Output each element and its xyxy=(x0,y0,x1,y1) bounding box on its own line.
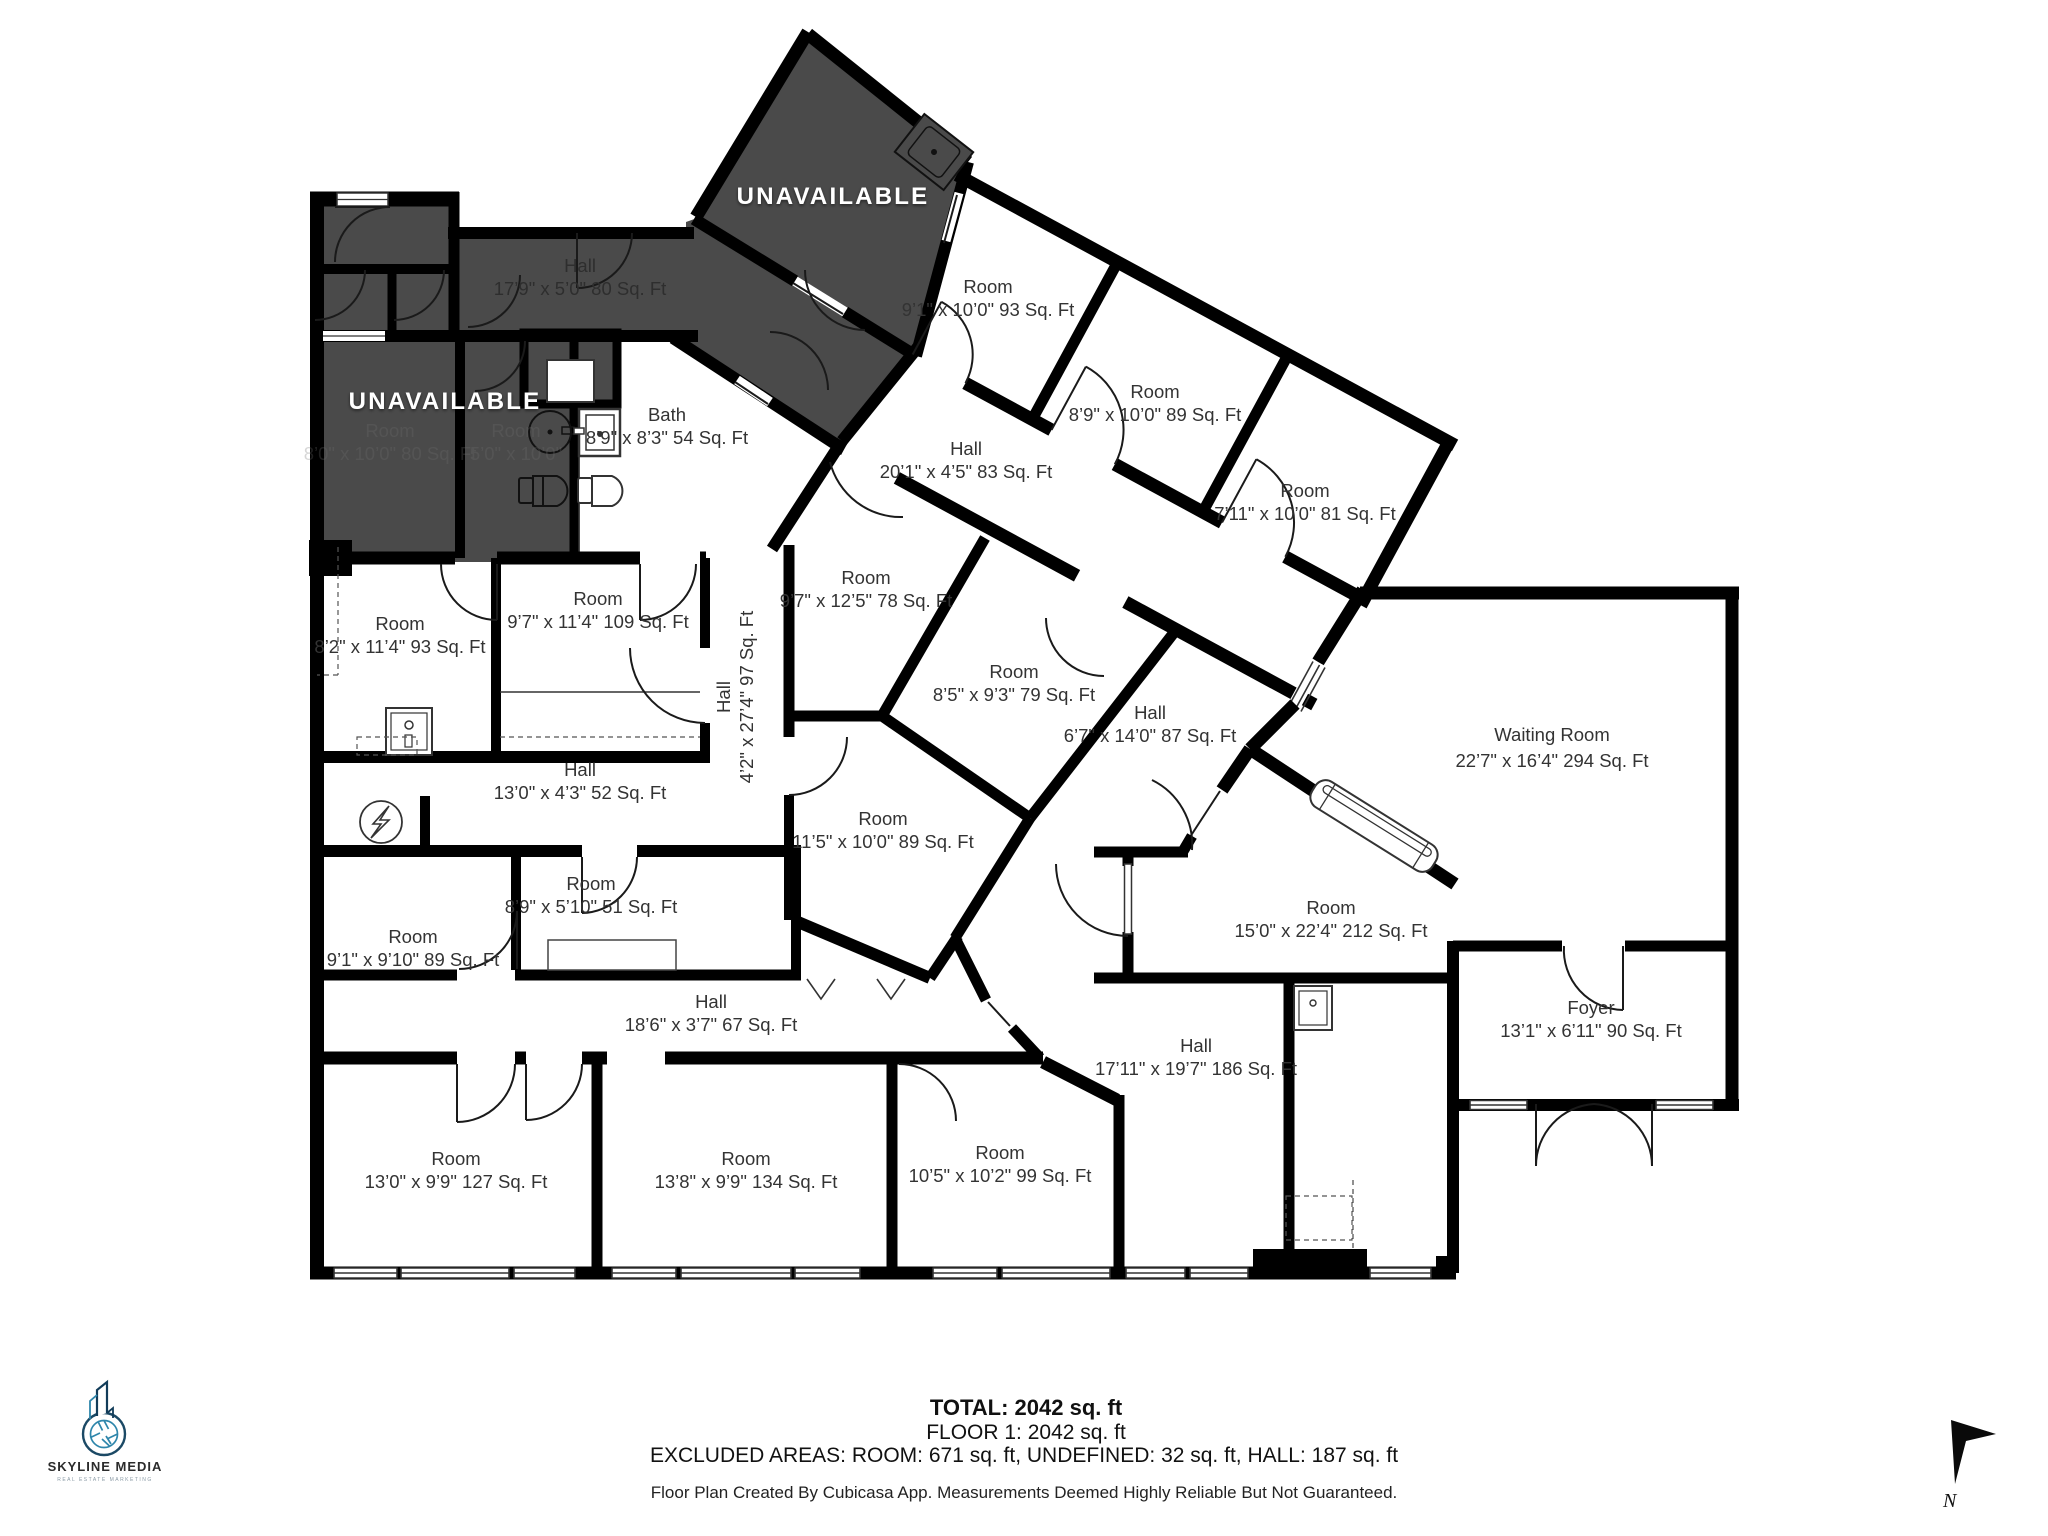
svg-text:9’7" x 12’5" 78 Sq. Ft: 9’7" x 12’5" 78 Sq. Ft xyxy=(780,590,953,611)
svg-text:Room: Room xyxy=(431,1148,480,1169)
svg-text:5’0" x 10’0": 5’0" x 10’0" xyxy=(470,443,562,464)
svg-text:Hall: Hall xyxy=(713,681,734,713)
svg-text:UNAVAILABLE: UNAVAILABLE xyxy=(737,183,930,210)
svg-text:Room: Room xyxy=(1280,480,1329,501)
svg-text:17’9" x 5’0" 80 Sq. Ft: 17’9" x 5’0" 80 Sq. Ft xyxy=(494,278,667,299)
svg-text:8’9" x 8’3" 54 Sq. Ft: 8’9" x 8’3" 54 Sq. Ft xyxy=(586,427,748,448)
svg-text:SKYLINE MEDIA: SKYLINE MEDIA xyxy=(48,1459,163,1474)
svg-text:7’11" x 10’0" 81 Sq. Ft: 7’11" x 10’0" 81 Sq. Ft xyxy=(1214,503,1395,524)
svg-text:13’0" x 9’9" 127 Sq. Ft: 13’0" x 9’9" 127 Sq. Ft xyxy=(365,1171,548,1192)
svg-text:Hall: Hall xyxy=(1134,702,1166,723)
svg-text:15’0" x 22’4" 212 Sq. Ft: 15’0" x 22’4" 212 Sq. Ft xyxy=(1234,920,1427,941)
svg-text:Room: Room xyxy=(491,420,540,441)
svg-text:EXCLUDED AREAS: ROOM: 671 sq.: EXCLUDED AREAS: ROOM: 671 sq. ft, UNDEFI… xyxy=(650,1444,1398,1467)
svg-text:Room: Room xyxy=(858,808,907,829)
svg-text:17’11" x 19’7" 186 Sq. Ft: 17’11" x 19’7" 186 Sq. Ft xyxy=(1095,1058,1297,1079)
svg-text:Room: Room xyxy=(1306,897,1355,918)
svg-text:13’1" x 6’11" 90 Sq. Ft: 13’1" x 6’11" 90 Sq. Ft xyxy=(1500,1020,1681,1041)
svg-text:Bath: Bath xyxy=(648,404,686,425)
svg-text:8’9" x 10’0" 89 Sq. Ft: 8’9" x 10’0" 89 Sq. Ft xyxy=(1069,404,1242,425)
svg-text:6’7" x 14’0" 87 Sq. Ft: 6’7" x 14’0" 87 Sq. Ft xyxy=(1064,725,1237,746)
svg-text:REAL ESTATE MARKETING: REAL ESTATE MARKETING xyxy=(57,1477,153,1483)
svg-text:8’5" x 9’3" 79 Sq. Ft: 8’5" x 9’3" 79 Sq. Ft xyxy=(933,684,1095,705)
svg-text:Hall: Hall xyxy=(564,759,596,780)
svg-text:Room: Room xyxy=(975,1142,1024,1163)
svg-text:Room: Room xyxy=(841,567,890,588)
svg-text:4’2" x 27’4" 97 Sq. Ft: 4’2" x 27’4" 97 Sq. Ft xyxy=(736,611,757,784)
svg-text:Room: Room xyxy=(566,873,615,894)
svg-text:Room: Room xyxy=(375,613,424,634)
svg-text:FLOOR 1: 2042 sq. ft: FLOOR 1: 2042 sq. ft xyxy=(926,1421,1126,1444)
svg-text:Room: Room xyxy=(1130,381,1179,402)
svg-text:11’5" x 10’0" 89 Sq. Ft: 11’5" x 10’0" 89 Sq. Ft xyxy=(792,831,973,852)
svg-text:Room: Room xyxy=(573,588,622,609)
svg-text:8’0" x 10’0" 80 Sq. Ft: 8’0" x 10’0" 80 Sq. Ft xyxy=(304,443,477,464)
svg-text:13’0" x 4’3" 52 Sq. Ft: 13’0" x 4’3" 52 Sq. Ft xyxy=(494,782,667,803)
svg-text:8’9" x 5’10" 51 Sq. Ft: 8’9" x 5’10" 51 Sq. Ft xyxy=(505,896,678,917)
svg-text:TOTAL: 2042 sq. ft: TOTAL: 2042 sq. ft xyxy=(930,1395,1123,1420)
svg-text:Floor Plan Created By Cubicasa: Floor Plan Created By Cubicasa App. Meas… xyxy=(651,1483,1398,1502)
svg-text:N: N xyxy=(1942,1490,1958,1512)
svg-text:Room: Room xyxy=(388,926,437,947)
svg-text:9’7" x 11’4" 109 Sq. Ft: 9’7" x 11’4" 109 Sq. Ft xyxy=(507,611,688,632)
svg-text:Room: Room xyxy=(989,661,1038,682)
svg-text:Foyer: Foyer xyxy=(1567,997,1614,1018)
svg-text:Room: Room xyxy=(721,1148,770,1169)
svg-text:Hall: Hall xyxy=(1180,1035,1212,1056)
svg-text:9’1" x 10’0" 93 Sq. Ft: 9’1" x 10’0" 93 Sq. Ft xyxy=(902,299,1075,320)
svg-text:Room: Room xyxy=(365,420,414,441)
svg-text:10’5" x 10’2" 99 Sq. Ft: 10’5" x 10’2" 99 Sq. Ft xyxy=(909,1165,1092,1186)
svg-text:9’1" x 9’10" 89 Sq. Ft: 9’1" x 9’10" 89 Sq. Ft xyxy=(327,949,500,970)
svg-text:Room: Room xyxy=(963,276,1012,297)
svg-text:20’1" x 4’5" 83 Sq. Ft: 20’1" x 4’5" 83 Sq. Ft xyxy=(880,461,1053,482)
svg-text:18’6" x 3’7" 67 Sq. Ft: 18’6" x 3’7" 67 Sq. Ft xyxy=(625,1014,798,1035)
svg-text:8’2" x 11’4" 93 Sq. Ft: 8’2" x 11’4" 93 Sq. Ft xyxy=(314,636,485,657)
svg-text:13’8" x 9’9" 134 Sq. Ft: 13’8" x 9’9" 134 Sq. Ft xyxy=(655,1171,838,1192)
svg-text:Waiting Room: Waiting Room xyxy=(1494,724,1610,745)
svg-text:UNAVAILABLE: UNAVAILABLE xyxy=(349,388,542,415)
svg-text:Hall: Hall xyxy=(695,991,727,1012)
svg-text:Hall: Hall xyxy=(564,255,596,276)
svg-text:Hall: Hall xyxy=(950,438,982,459)
svg-text:22’7" x 16’4" 294 Sq. Ft: 22’7" x 16’4" 294 Sq. Ft xyxy=(1455,750,1648,771)
